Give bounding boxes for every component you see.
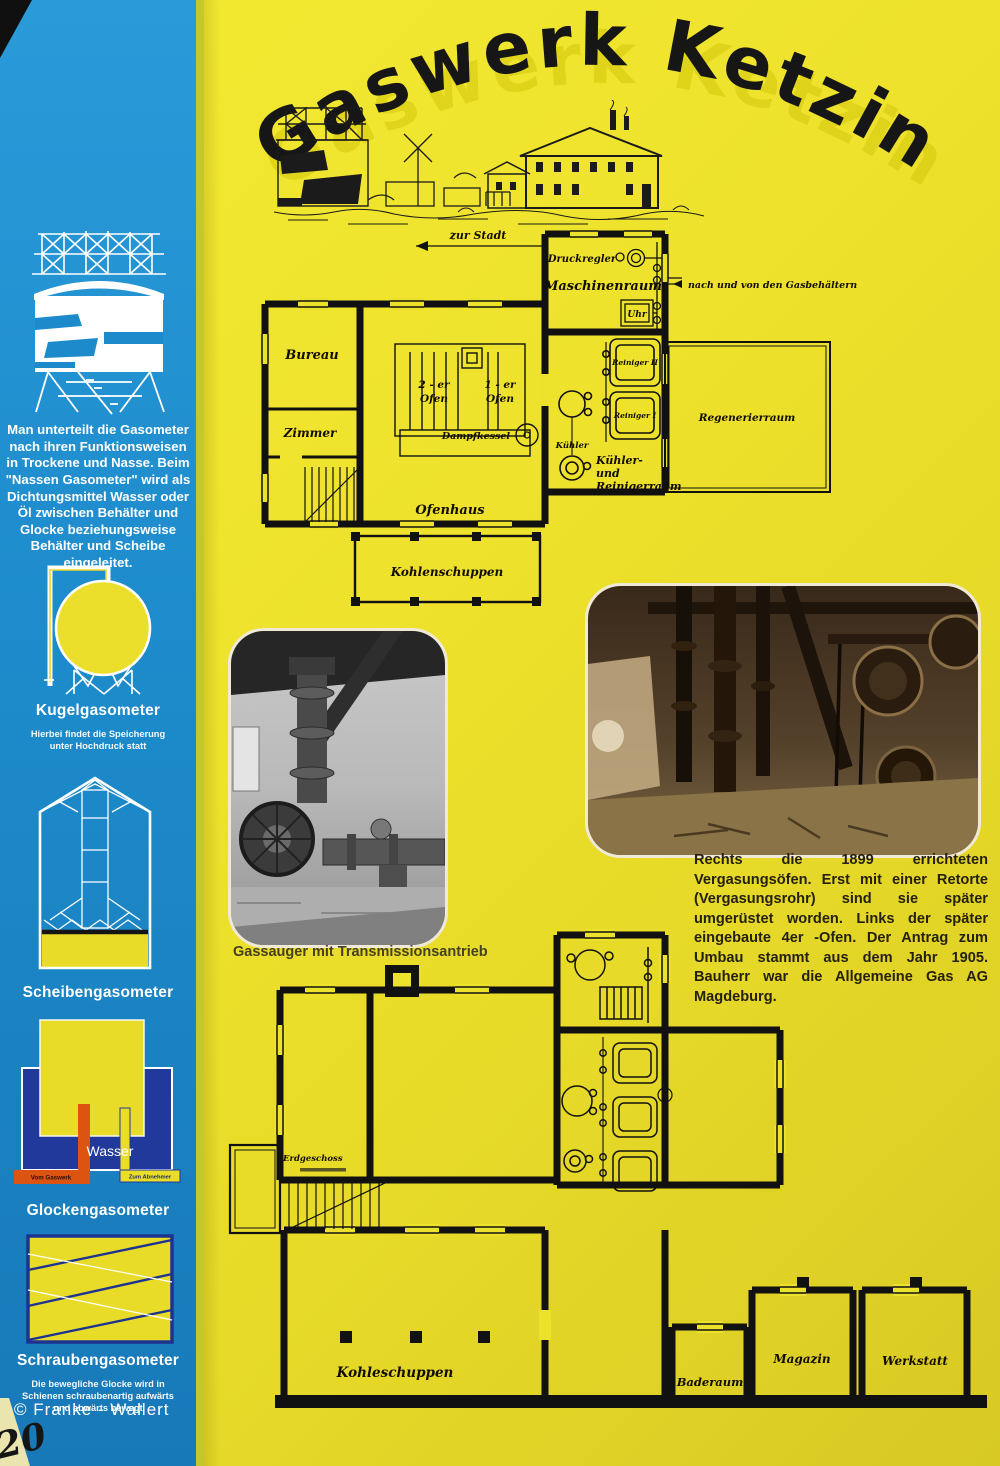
label-bureau: Bureau <box>284 348 338 363</box>
label-ofen2-word: Ofen <box>420 393 448 405</box>
label-zimmer: Zimmer <box>283 426 338 440</box>
label-werkstatt: Werkstatt <box>882 1354 948 1368</box>
kugelgasometer-caption: Hierbei findet die Speicherung unter Hoc… <box>18 728 178 752</box>
label-kuehlerraum-2: und <box>596 467 620 480</box>
glockengasometer-label: Glockengasometer <box>2 1202 194 1220</box>
label-druckregler: Druckregler <box>547 254 617 265</box>
label-magazin: Magazin <box>772 1352 830 1366</box>
label-maschinenraum: Maschinenraum <box>543 279 662 294</box>
label-kuehler: Kühler <box>555 440 589 451</box>
scheibengasometer-label: Scheibengasometer <box>2 984 194 1002</box>
label-baderaum: Baderaum <box>676 1375 744 1389</box>
label-kuehlerraum-1: Kühler- <box>595 454 643 467</box>
label-zur-stadt: zur Stadt <box>449 229 507 242</box>
label-kohleschuppen: Kohleschuppen <box>336 1365 454 1381</box>
floor-plan-top: zur Stadt nach und von den Gasbehältern … <box>210 224 1000 616</box>
glocken-wasser-label: Wasser <box>87 1143 134 1159</box>
gasometer-illustration <box>8 222 190 418</box>
sidebar-intro-text: Man unterteilt die Gasometer nach ihren … <box>2 422 194 572</box>
label-kohlenschuppen: Kohlenschuppen <box>390 565 503 579</box>
label-gasbehaelter: nach und von den Gasbehältern <box>688 280 857 291</box>
photo-gassauger <box>228 628 448 948</box>
poster-page: Man unterteilt die Gasometer nach ihren … <box>0 0 1000 1466</box>
label-erdgeschoss: Erdgeschoss <box>282 1154 343 1164</box>
glocken-outlet-label: Zum Abnehmer <box>129 1175 172 1181</box>
schraubengasometer-diagram <box>24 1232 176 1346</box>
label-uhr: Uhr <box>627 310 647 320</box>
floor-plan-bottom: Erdgeschoss Kohleschuppen Baderaum Magaz… <box>205 925 1000 1425</box>
schraubengasometer-label: Schraubengasometer <box>2 1352 194 1370</box>
scheibengasometer-diagram <box>30 770 162 976</box>
glockengasometer-diagram: Wasser Vom Gaswerk Zum Abnehmer <box>12 1010 190 1196</box>
label-reiniger1: Reiniger I <box>613 411 657 420</box>
glocken-inlet-label: Vom Gaswerk <box>31 1175 72 1182</box>
kugelgasometer-label: Kugelgasometer <box>2 702 194 720</box>
label-ofen1-word: Ofen <box>486 393 514 405</box>
label-kuehlerraum-3: Reinigerraum <box>595 480 682 493</box>
gasworks-sketch <box>258 100 728 235</box>
illegible-small-print <box>300 1168 346 1172</box>
label-reiniger2: Reiniger II <box>611 358 658 367</box>
label-ofenhaus: Ofenhaus <box>415 503 485 518</box>
label-regenerierraum: Regenerierraum <box>698 412 796 424</box>
label-ofen2: 2 - er <box>417 379 451 391</box>
photo-vergasungsoefen <box>585 583 981 858</box>
label-dampfkessel: Dampfkessel <box>441 431 511 442</box>
label-ofen1: 1 - er <box>484 379 517 391</box>
kugelgasometer-diagram <box>22 552 177 702</box>
